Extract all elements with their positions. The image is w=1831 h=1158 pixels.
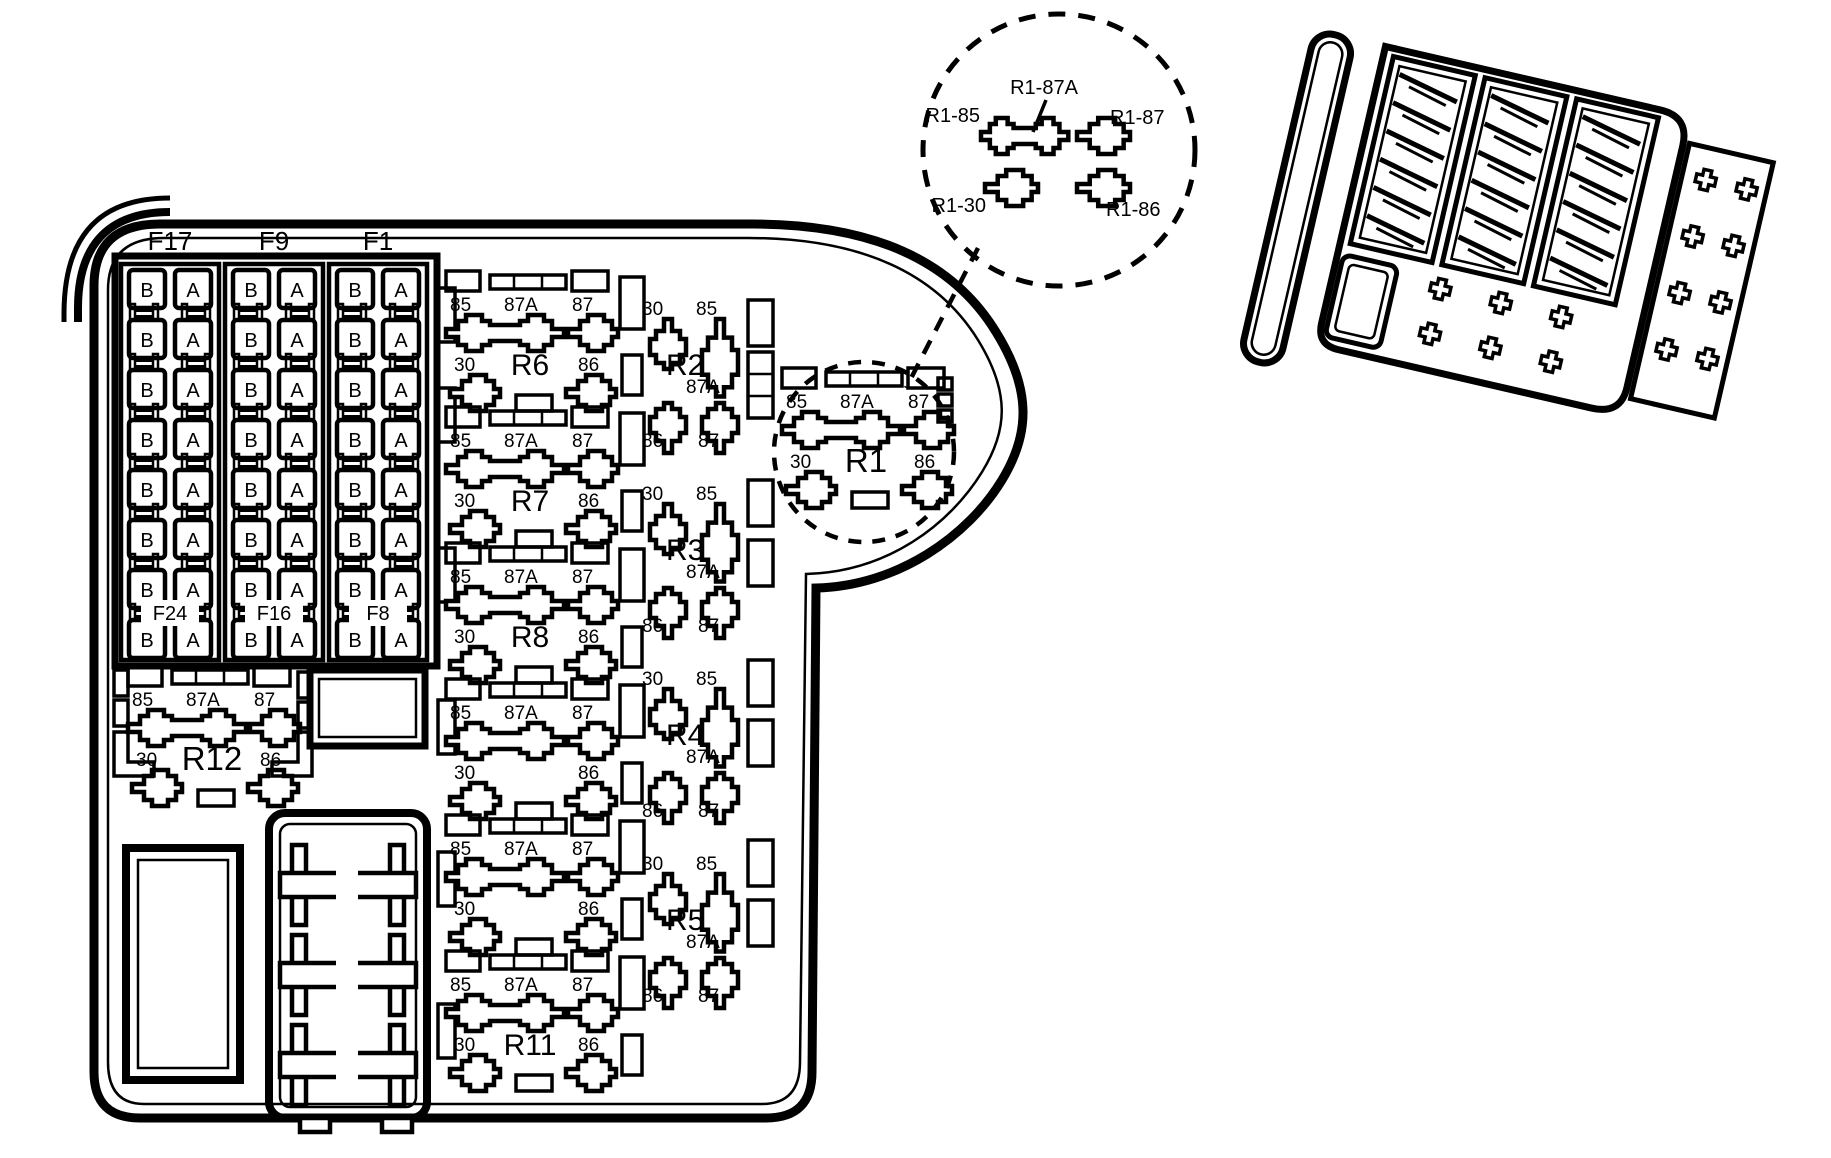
fuse-column-header: F17	[148, 226, 193, 256]
spacer-divider	[514, 956, 542, 968]
pin-label-87: 87	[698, 986, 719, 1007]
terminal-85-87a	[446, 995, 564, 1031]
foot-tab	[382, 1118, 412, 1132]
spacer-slot	[852, 492, 888, 508]
fuse-letter: B	[140, 380, 153, 402]
bridge-bar	[136, 508, 152, 512]
spacer-slot	[490, 411, 566, 425]
terminal-shape	[446, 315, 564, 351]
terminal-86	[902, 472, 952, 508]
terminal-shape	[568, 859, 618, 895]
relay-group-R4: 3085R487A8687	[642, 669, 738, 823]
bottom-connector-block	[269, 813, 427, 1132]
spacer-slot	[490, 819, 566, 833]
mini-fuse-slot	[620, 685, 644, 737]
fuse-letter: B	[140, 580, 153, 602]
mini-fuse-slot-divided	[748, 352, 773, 418]
beam-notch	[336, 869, 358, 877]
terminal-shape	[568, 995, 618, 1031]
bridge-bar	[136, 358, 152, 362]
mini-fuse-slot	[620, 413, 644, 465]
fuse-letter: B	[348, 280, 361, 302]
terminal-85-87a	[446, 587, 564, 623]
relay-label-R11: R11	[504, 1029, 557, 1062]
terminal-85-87a	[446, 723, 564, 759]
bridge-bar	[136, 458, 152, 462]
fuse-letter: A	[394, 630, 408, 652]
spacer-slot	[490, 275, 566, 289]
relay-group-R11: 8587A8730R1186	[446, 951, 618, 1091]
spacer-slot	[198, 790, 234, 806]
fuse-column-footer: F16	[257, 603, 291, 625]
fuse-letter: A	[186, 330, 200, 352]
bridge-bar	[292, 558, 308, 562]
fuse-letter: B	[348, 330, 361, 352]
terminal-86	[566, 1055, 616, 1091]
r1-30-terminal	[985, 170, 1038, 206]
mini-fuse-slot	[620, 821, 644, 873]
bridge-bar	[396, 458, 412, 462]
bridge-bar	[292, 508, 308, 512]
mini-fuse-slot	[622, 627, 642, 667]
diagram-stage: F17BABABABABABABABAF24F9BABABABABABABABA…	[0, 0, 1831, 1158]
spacer-slot	[516, 395, 552, 411]
bridge-bar	[344, 408, 360, 412]
bottom-left-module	[126, 848, 240, 1080]
pin-label-87a: 87A	[686, 747, 720, 768]
connector-isometric-view	[1240, 30, 1779, 464]
callout-label-r1-86: R1-86	[1106, 199, 1160, 221]
mini-fuse-slot	[748, 300, 773, 346]
pin-label-87a: 87A	[686, 562, 720, 583]
relay-group-R2: 3085R287A8687	[642, 299, 738, 453]
terminal-87	[568, 315, 618, 351]
module-inner	[138, 860, 228, 1068]
slot-dividers	[748, 374, 773, 396]
spacer-slot	[572, 271, 608, 291]
terminal-shape	[902, 472, 952, 508]
relay-group-R6: 8587A8730R686	[446, 271, 618, 411]
bridge-bar	[136, 308, 152, 312]
terminal-shape	[446, 995, 564, 1031]
fuse-column-footer: F8	[366, 603, 389, 625]
bridge-bar	[188, 308, 204, 312]
terminal-85-87a	[446, 451, 564, 487]
relay-group-R1: 8587A8730R186	[782, 368, 954, 508]
mini-fuse-slot	[622, 355, 642, 395]
fuse-letter: B	[140, 430, 153, 452]
card-edge-bracket	[280, 1025, 416, 1105]
relay-group-R12: 8587A8730R1286	[128, 666, 300, 806]
spacer-divider	[514, 548, 542, 560]
card-edge-bracket	[280, 935, 416, 1015]
fuse-letter: A	[186, 280, 200, 302]
card-edge-bracket	[280, 845, 416, 925]
spacer-slot	[516, 803, 552, 819]
terminal-30	[450, 1055, 500, 1091]
spacer-divider	[514, 412, 542, 424]
bridge-bar	[344, 508, 360, 512]
bridge-bar	[344, 358, 360, 362]
fuse-letter: A	[394, 580, 408, 602]
mini-fuse-slot	[620, 549, 644, 601]
bridge-bar	[396, 508, 412, 512]
bridge-bar	[292, 358, 308, 362]
fuse-column-F9: F9BABABABABABABABAF16	[225, 226, 323, 660]
spacer-divider	[514, 684, 542, 696]
fuse-letter: B	[140, 480, 153, 502]
fuse-letter: A	[394, 530, 408, 552]
mini-fuse-slot	[622, 763, 642, 803]
fuse-columns: F17BABABABABABABABAF24F9BABABABABABABABA…	[121, 226, 427, 660]
spacer-divider	[514, 820, 542, 832]
fuse-letter: A	[290, 580, 304, 602]
terminal-shape	[568, 451, 618, 487]
bridge-bar	[292, 458, 308, 462]
spacer-slot	[490, 683, 566, 697]
bracket-segment	[114, 670, 128, 696]
beam-notch	[336, 959, 358, 967]
fuse-letter: A	[290, 630, 304, 652]
fuse-letter: A	[394, 380, 408, 402]
pin-label-87: 87	[698, 801, 719, 822]
bridge-bar	[292, 308, 308, 312]
relay-group-R3: 3085R387A8687	[642, 484, 738, 638]
beam-notch	[336, 1073, 358, 1081]
fuse-letter: B	[244, 280, 257, 302]
relay-group-R8: 8587A8730R886	[446, 543, 618, 683]
fuse-letter: A	[290, 280, 304, 302]
terminal-87	[568, 995, 618, 1031]
terminal-shape	[446, 723, 564, 759]
mini-fuse-slot	[622, 491, 642, 531]
terminal-shape	[450, 1055, 500, 1091]
terminal-87	[568, 587, 618, 623]
mini-fuse-slot	[622, 899, 642, 939]
beam-notch	[336, 1049, 358, 1057]
terminal-shape	[446, 451, 564, 487]
bridge-bar	[240, 308, 256, 312]
callout-label-r1-87a: R1-87A	[1010, 77, 1078, 99]
module-outer	[310, 670, 425, 746]
relay-group-R5: 3085R587A8687	[642, 854, 738, 1008]
mini-fuse-slot	[748, 720, 773, 766]
fuse-letter: B	[244, 330, 257, 352]
fuse-letter: B	[348, 580, 361, 602]
bridge-bar	[240, 358, 256, 362]
module-outer	[126, 848, 240, 1080]
fuse-letter: B	[244, 480, 257, 502]
mini-fuse-slot	[748, 900, 773, 946]
spacer-slot	[826, 372, 902, 386]
r1-85-87a-terminal	[981, 118, 1068, 154]
relay-group-R7: 8587A8730R786	[446, 407, 618, 547]
terminal-shape	[786, 472, 836, 508]
spacer-slot	[516, 939, 552, 955]
mini-fuse-slot	[620, 277, 644, 329]
terminal-shape	[446, 859, 564, 895]
bridge-bar	[188, 458, 204, 462]
spacer-slot	[516, 1075, 552, 1091]
fuse-letter: A	[290, 430, 304, 452]
bridge-bar	[188, 408, 204, 412]
fuse-letter: A	[394, 280, 408, 302]
pin-label-87a: 87A	[686, 377, 720, 398]
fuse-letter: A	[186, 530, 200, 552]
pin-label-30: 30	[642, 669, 663, 690]
spacer-slot	[516, 531, 552, 547]
fuse-letter: A	[290, 530, 304, 552]
relay-label-R12: R12	[182, 740, 243, 777]
fuse-letter: B	[244, 580, 257, 602]
spacer-divider	[514, 276, 542, 288]
foot-tab	[300, 1118, 330, 1132]
terminal-85-87a	[446, 315, 564, 351]
bridge-bar	[188, 508, 204, 512]
relay-group-unlabeled: 8587A873086	[446, 815, 618, 955]
terminal-shape	[568, 587, 618, 623]
mini-fuse-slot	[748, 840, 773, 886]
terminal-shape	[250, 710, 300, 746]
bridge-bar	[136, 558, 152, 562]
card-edge-brackets	[280, 845, 416, 1105]
bridge-bar	[344, 558, 360, 562]
fuse-letter: A	[290, 330, 304, 352]
fuse-letter: B	[348, 480, 361, 502]
r12-side-module	[310, 670, 425, 746]
spacer-divider	[850, 373, 878, 385]
fuse-box-diagram: F17BABABABABABABABAF24F9BABABABABABABABA…	[0, 0, 1831, 1158]
pin-label-87a: 87A	[686, 932, 720, 953]
terminal-87	[568, 723, 618, 759]
pin-label-30: 30	[642, 854, 663, 875]
fuse-letter: A	[394, 480, 408, 502]
spacer-divider	[196, 671, 224, 683]
pin-label-87: 87	[698, 431, 719, 452]
bridge-bar	[188, 358, 204, 362]
fuse-letter: B	[140, 330, 153, 352]
pin-label-86: 86	[642, 616, 663, 637]
terminal-30	[786, 472, 836, 508]
terminal-shape	[568, 315, 618, 351]
relay-label-R8: R8	[511, 621, 549, 654]
beam-notch	[336, 983, 358, 991]
spacer-slot	[516, 667, 552, 683]
fuse-column-F1: F1BABABABABABABABAF8	[329, 226, 427, 660]
bridge-bar	[396, 358, 412, 362]
fuse-letter: A	[394, 330, 408, 352]
fuse-letter: B	[140, 530, 153, 552]
relay-label-R6: R6	[511, 349, 549, 382]
beam-notch	[336, 893, 358, 901]
mini-fuse-slot	[748, 480, 773, 526]
pin-label-86: 86	[642, 801, 663, 822]
fuse-column-header: F1	[363, 226, 393, 256]
mini-fuse-slot	[620, 957, 644, 1009]
fuse-column-F17: F17BABABABABABABABAF24	[121, 226, 219, 660]
fuse-letter: B	[348, 530, 361, 552]
terminal-shape	[566, 1055, 616, 1091]
bridge-bar	[240, 558, 256, 562]
pin-label-87: 87	[698, 616, 719, 637]
relay-label-R7: R7	[511, 485, 549, 518]
relay-label-R1: R1	[845, 442, 887, 479]
terminal-shape	[568, 723, 618, 759]
fuse-letter: B	[348, 630, 361, 652]
pin-label-30: 30	[642, 484, 663, 505]
bridge-bar	[240, 508, 256, 512]
fuse-column-header: F9	[259, 226, 289, 256]
fuse-letter: A	[394, 430, 408, 452]
fuse-letter: B	[244, 430, 257, 452]
fuse-letter: A	[186, 580, 200, 602]
callout-label-r1-30: R1-30	[932, 195, 986, 217]
relay-detail-callout: R1-85 R1-87A R1-87 R1-30 R1-86	[906, 14, 1195, 388]
bridge-bar	[396, 558, 412, 562]
relay-group-unlabeled: 8587A873086	[446, 679, 618, 819]
mini-fuse-slot	[748, 540, 773, 586]
fuse-column-footer: F24	[153, 603, 187, 625]
fuse-letter: B	[140, 280, 153, 302]
fuse-letter: A	[186, 480, 200, 502]
fuse-letter: B	[348, 380, 361, 402]
pin-label-30: 30	[642, 299, 663, 320]
bridge-bar	[344, 458, 360, 462]
spacer-slot	[490, 955, 566, 969]
fuse-letter: B	[348, 430, 361, 452]
terminal-shape	[446, 587, 564, 623]
terminal-87	[568, 859, 618, 895]
bridge-bar	[292, 408, 308, 412]
mini-fuse-slot	[622, 1035, 642, 1075]
spacer-slot	[172, 670, 248, 684]
fuse-letter: B	[244, 530, 257, 552]
terminal-87	[568, 451, 618, 487]
pin-label-86: 86	[642, 986, 663, 1007]
fuse-letter: B	[244, 630, 257, 652]
pin-label-86: 86	[642, 431, 663, 452]
fuse-letter: B	[244, 380, 257, 402]
bridge-bar	[136, 408, 152, 412]
fuse-letter: A	[186, 630, 200, 652]
fuse-letter: A	[186, 380, 200, 402]
callout-label-r1-85: R1-85	[926, 105, 980, 127]
bridge-bar	[240, 408, 256, 412]
fuse-letter: B	[140, 630, 153, 652]
bridge-bar	[188, 558, 204, 562]
mini-fuse-slot	[748, 660, 773, 706]
fuse-letter: A	[186, 430, 200, 452]
callout-label-r1-87: R1-87	[1110, 107, 1164, 129]
terminal-85-87a	[446, 859, 564, 895]
fuse-letter: A	[290, 380, 304, 402]
bridge-bar	[240, 458, 256, 462]
bridge-bar	[344, 308, 360, 312]
terminal-87	[250, 710, 300, 746]
bridge-bar	[396, 408, 412, 412]
bridge-bar	[396, 308, 412, 312]
spacer-slot	[490, 547, 566, 561]
fuse-letter: A	[290, 480, 304, 502]
